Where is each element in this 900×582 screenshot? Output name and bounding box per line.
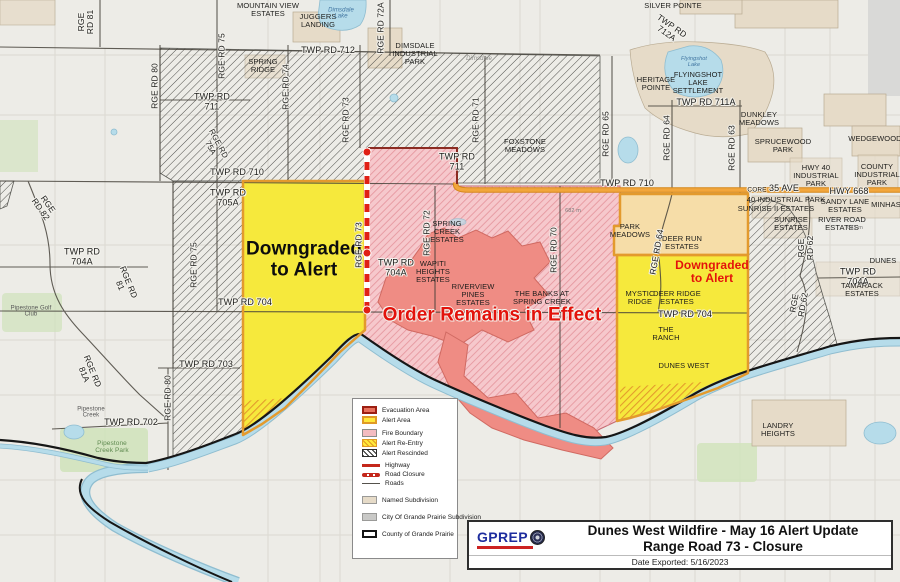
legend-item-alert-rescinded: Alert Rescinded [362,449,454,457]
legend-item-county: County of Grande Prairie [362,530,454,538]
map-title-line1: Dunes West Wildfire - May 16 Alert Updat… [563,523,883,539]
legend-item-evacuation-area: Evacuation Area [362,406,454,414]
legend-item-city-subdivision: City Of Grande Prairie Subdivision [362,513,454,521]
legend-swatch-highway [362,464,380,467]
legend-label: Named Subdivision [382,497,438,504]
legend-label: Alert Area [382,417,411,424]
legend-label: Alert Re-Entry [382,440,423,447]
gprep-logo-text: GPREP [477,529,528,545]
city-subdivision-area [868,0,900,96]
wildfire-alert-map: MOUNTAIN VIEW ESTATESSILVER POINTEJUGGER… [0,0,900,582]
legend-swatch-evacuation-area [362,406,377,414]
legend-item-road-closure: Road Closure [362,471,454,478]
legend-item-fire-boundary: Fire Boundary [362,429,454,437]
legend-swatch-named-subdivision [362,496,377,504]
gprep-emblem-icon [530,530,545,545]
legend-label: Fire Boundary [382,430,423,437]
legend-item-alert-area: Alert Area [362,416,454,424]
map-title-line2: Range Road 73 - Closure [563,539,883,555]
date-exported: Date Exported: 5/16/2023 [469,555,891,569]
legend-item-named-subdivision: Named Subdivision [362,496,454,504]
map-title-box: GPREP Dunes West Wildfire - May 16 Alert… [467,520,893,570]
legend-label: Evacuation Area [382,407,429,414]
gprep-logo: GPREP [477,529,563,549]
legend-swatch-alert-area [362,416,377,424]
legend-label: Roads [385,480,404,487]
legend-item-highway: Highway [362,462,454,469]
map-legend: Evacuation Area Alert Area Fire Boundary… [352,398,458,559]
legend-label: County of Grande Prairie [382,531,454,538]
road-closure-rge-rd-73 [363,148,371,314]
legend-swatch-city-subdivision [362,513,377,521]
legend-swatch-alert-rescinded [362,449,377,457]
legend-item-roads: Roads [362,480,454,487]
legend-swatch-fire-boundary [362,429,377,437]
legend-item-alert-reentry: Alert Re-Entry [362,439,454,447]
legend-label: Road Closure [385,471,425,478]
legend-swatch-roads [362,483,380,484]
alert-area-subdivision-band [614,194,748,255]
gprep-logo-tagline-strip [477,546,533,549]
legend-swatch-road-closure [362,473,380,477]
legend-label: Alert Rescinded [382,450,428,457]
legend-swatch-alert-reentry [362,439,377,447]
legend-swatch-county [362,530,377,538]
legend-label: Highway [385,462,410,469]
